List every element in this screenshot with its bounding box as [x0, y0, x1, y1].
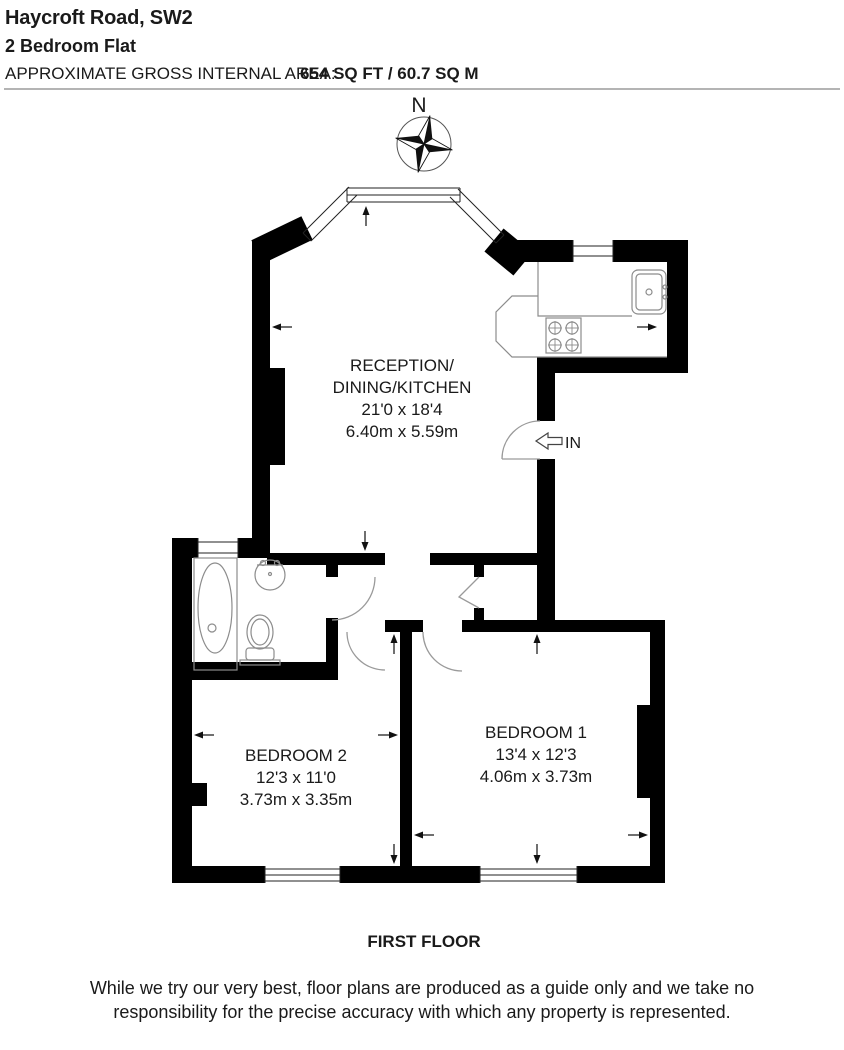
reception-depth-arrow-bottom	[362, 531, 369, 551]
bathroom-door-arc	[332, 577, 375, 620]
entrance-in-label: IN	[565, 435, 581, 452]
bedroom1-door-arc	[423, 632, 462, 671]
floorplan-canvas: Haycroft Road, SW2 2 Bedroom Flat APPROX…	[0, 0, 844, 1050]
bedroom2-dims-metric: 3.73m x 3.35m	[240, 790, 352, 809]
reception-width-arrow-left	[272, 324, 292, 331]
reception-label-line1: RECEPTION/	[350, 356, 454, 375]
kitchen-sink	[632, 270, 667, 314]
bedroom2-width-arrow-right	[378, 732, 398, 739]
bedroom1-width-arrow-left	[414, 832, 434, 839]
bathroom-window	[198, 538, 238, 558]
bedroom2-door-arc	[347, 632, 385, 670]
bedroom1-depth-arrow-bottom	[534, 844, 541, 864]
property-title: Haycroft Road, SW2	[5, 7, 193, 29]
bedroom2-depth-arrow-bottom	[391, 844, 398, 864]
compass-north-label: N	[411, 94, 426, 117]
reception-width-arrow-right	[637, 324, 657, 331]
bedroom1-width-arrow-right	[628, 832, 648, 839]
bedroom2-depth-arrow-top	[391, 634, 398, 654]
compass-rose: N	[390, 94, 459, 178]
toilet	[240, 615, 280, 665]
floorplan-page: Haycroft Road, SW2 2 Bedroom Flat APPROX…	[0, 0, 844, 1050]
area-value: 654 SQ FT / 60.7 SQ M	[300, 64, 479, 83]
stove-hob	[546, 318, 581, 353]
reception-depth-arrow-top	[363, 206, 370, 226]
bedroom1-depth-arrow-top	[534, 634, 541, 654]
reception-dims-metric: 6.40m x 5.59m	[346, 422, 458, 441]
area-label: APPROXIMATE GROSS INTERNAL AREA:	[5, 64, 336, 83]
bedroom1-label: BEDROOM 1	[485, 723, 587, 742]
disclaimer-line2: responsibility for the precise accuracy …	[113, 1002, 730, 1022]
disclaimer-line1: While we try our very best, floor plans …	[90, 978, 754, 998]
property-subtitle: 2 Bedroom Flat	[5, 36, 136, 56]
bedroom1-window	[480, 866, 577, 883]
reception-label-line2: DINING/KITCHEN	[333, 378, 472, 397]
entrance-in-arrow-icon	[536, 433, 562, 449]
basin	[255, 560, 285, 590]
compass-star-icon	[390, 110, 459, 179]
reception-dims-imperial: 21'0 x 18'4	[361, 400, 442, 419]
bay-window	[303, 187, 504, 243]
bathtub	[194, 558, 237, 670]
bedroom1-dims-imperial: 13'4 x 12'3	[495, 745, 576, 764]
entrance-door-arc	[502, 421, 540, 459]
bedroom2-label: BEDROOM 2	[245, 746, 347, 765]
entrance-marker: IN	[536, 433, 581, 452]
bedroom2-width-arrow-left	[194, 732, 214, 739]
bedroom1-dims-metric: 4.06m x 3.73m	[480, 767, 592, 786]
first-floor-label: FIRST FLOOR	[367, 932, 480, 951]
header: Haycroft Road, SW2 2 Bedroom Flat APPROX…	[4, 7, 840, 89]
bedroom2-window	[265, 866, 340, 883]
walls	[172, 228, 688, 883]
bedroom2-dims-imperial: 12'3 x 11'0	[256, 768, 336, 787]
kitchen-window	[573, 240, 613, 262]
cupboard-bifold-door	[459, 577, 479, 608]
